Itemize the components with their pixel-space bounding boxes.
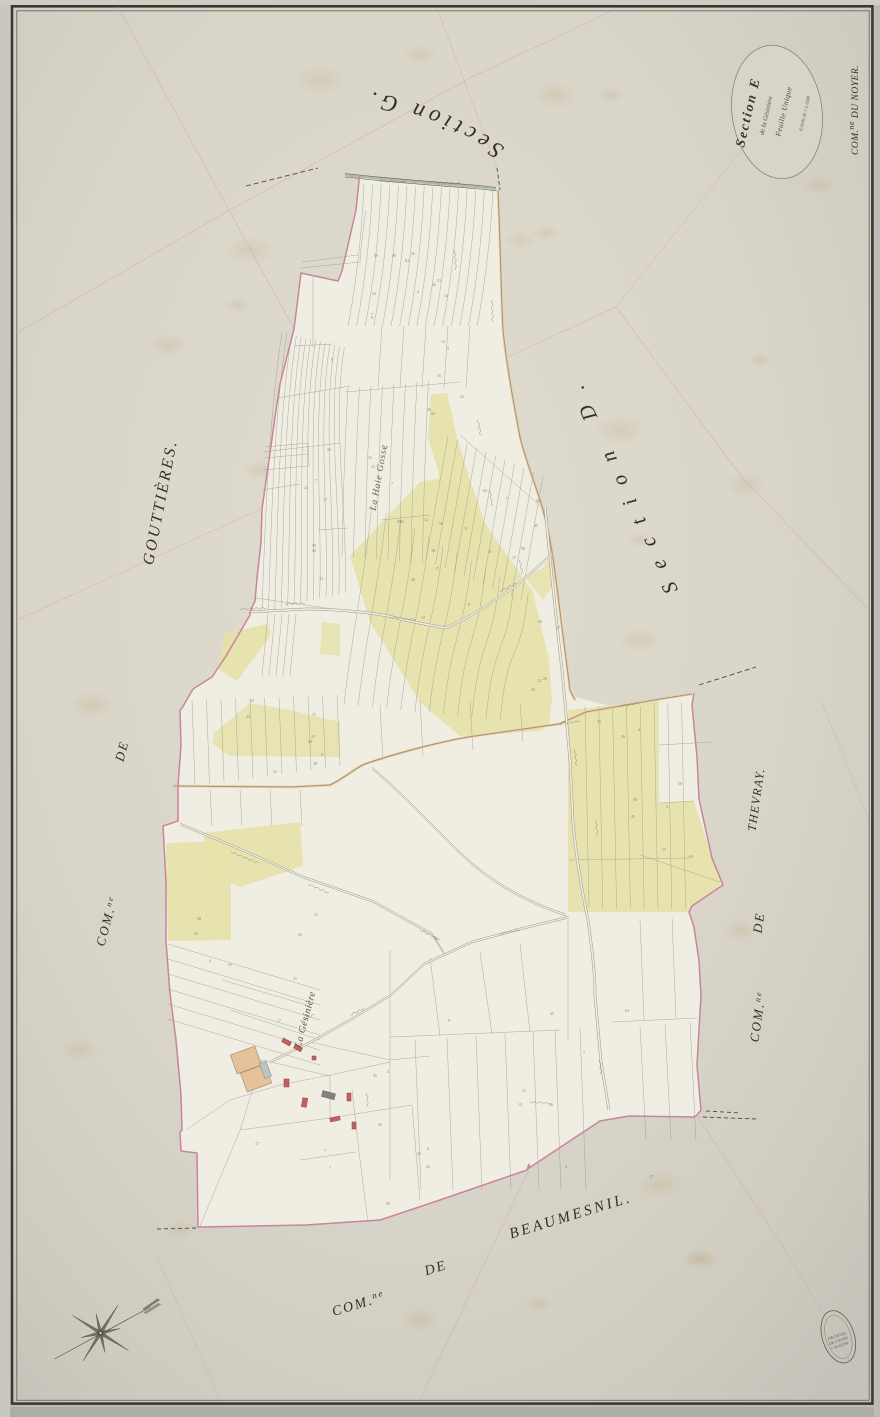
svg-text:26: 26 [426,1164,430,1169]
svg-text:45: 45 [378,1122,382,1127]
svg-text:58: 58 [633,797,637,802]
svg-text:31: 31 [400,519,404,524]
svg-text:23: 23 [311,734,315,739]
svg-text:23: 23 [246,714,250,719]
svg-text:DE: DE [749,911,767,935]
svg-text:63: 63 [536,498,540,503]
svg-text:12: 12 [444,293,448,298]
svg-text:17: 17 [556,625,560,630]
svg-text:4: 4 [427,1146,429,1151]
svg-text:31: 31 [417,1151,421,1156]
svg-text:63: 63 [625,1008,629,1013]
svg-text:23: 23 [304,485,308,490]
svg-text:63: 63 [689,854,693,859]
svg-text:9: 9 [465,526,467,531]
svg-text:31: 31 [488,549,492,554]
svg-text:9: 9 [448,1018,450,1023]
svg-text:38: 38 [431,548,435,553]
svg-text:31: 31 [522,1088,526,1093]
svg-text:38: 38 [197,916,201,921]
svg-text:17: 17 [512,555,516,560]
svg-text:7: 7 [391,481,393,486]
svg-text:9: 9 [468,602,470,607]
svg-text:4: 4 [417,289,419,294]
svg-text:4: 4 [638,727,640,732]
svg-text:7: 7 [583,1050,585,1055]
svg-text:12: 12 [421,615,425,620]
svg-text:38: 38 [312,543,316,548]
svg-text:38: 38 [313,761,317,766]
svg-text:45: 45 [534,523,538,528]
svg-text:63: 63 [298,932,302,937]
svg-text:23: 23 [437,278,441,283]
svg-text:45: 45 [312,548,316,553]
svg-text:58: 58 [439,521,443,526]
svg-text:58: 58 [392,253,396,258]
svg-text:12: 12 [371,464,375,469]
svg-text:26: 26 [549,1102,553,1107]
svg-text:31: 31 [368,455,372,460]
svg-text:17: 17 [312,712,316,717]
svg-text:31: 31 [273,769,277,774]
svg-text:7: 7 [506,496,508,501]
svg-text:26: 26 [411,251,415,256]
svg-text:23: 23 [314,912,318,917]
svg-text:45: 45 [631,814,635,819]
svg-text:63: 63 [405,258,409,263]
svg-text:12: 12 [441,339,445,344]
svg-text:63: 63 [483,488,487,493]
svg-text:26: 26 [432,282,436,287]
svg-text:4: 4 [209,958,211,963]
svg-text:26: 26 [621,734,625,739]
svg-text:12: 12 [250,698,254,703]
svg-text:23: 23 [460,394,464,399]
svg-text:17: 17 [255,1141,259,1146]
svg-text:45: 45 [373,1073,377,1078]
svg-text:9: 9 [331,357,333,362]
svg-text:7: 7 [329,1165,331,1170]
svg-text:9: 9 [447,346,449,351]
svg-text:17: 17 [277,1018,281,1023]
svg-text:26: 26 [543,676,547,681]
svg-text:4: 4 [565,1164,567,1169]
svg-text:58: 58 [374,253,378,258]
svg-text:31: 31 [327,447,331,452]
svg-text:17: 17 [435,566,439,571]
svg-text:7: 7 [315,478,317,483]
svg-text:23: 23 [597,719,601,724]
svg-text:45: 45 [437,373,441,378]
svg-text:23: 23 [372,291,376,296]
svg-text:45: 45 [434,936,438,941]
svg-text:26: 26 [411,577,415,582]
svg-text:12: 12 [424,517,428,522]
svg-text:58: 58 [386,1201,390,1206]
svg-text:26: 26 [308,739,312,744]
svg-text:58: 58 [678,781,682,786]
svg-text:58: 58 [521,546,525,551]
svg-text:12: 12 [518,1102,522,1107]
svg-text:4: 4 [387,1069,389,1074]
svg-text:17: 17 [649,1174,653,1179]
svg-text:17: 17 [662,847,666,852]
svg-text:17: 17 [323,497,327,502]
svg-text:45: 45 [550,1011,554,1016]
svg-text:12: 12 [537,678,541,683]
svg-text:63: 63 [431,411,435,416]
svg-text:58: 58 [538,619,542,624]
svg-text:31: 31 [293,976,297,981]
svg-text:9: 9 [371,315,373,320]
svg-text:4: 4 [666,804,668,809]
svg-text:7: 7 [324,1148,326,1153]
svg-text:31: 31 [319,576,323,581]
svg-text:63: 63 [228,962,232,967]
svg-text:9: 9 [321,752,323,757]
svg-text:26: 26 [531,687,535,692]
svg-text:31: 31 [194,931,198,936]
